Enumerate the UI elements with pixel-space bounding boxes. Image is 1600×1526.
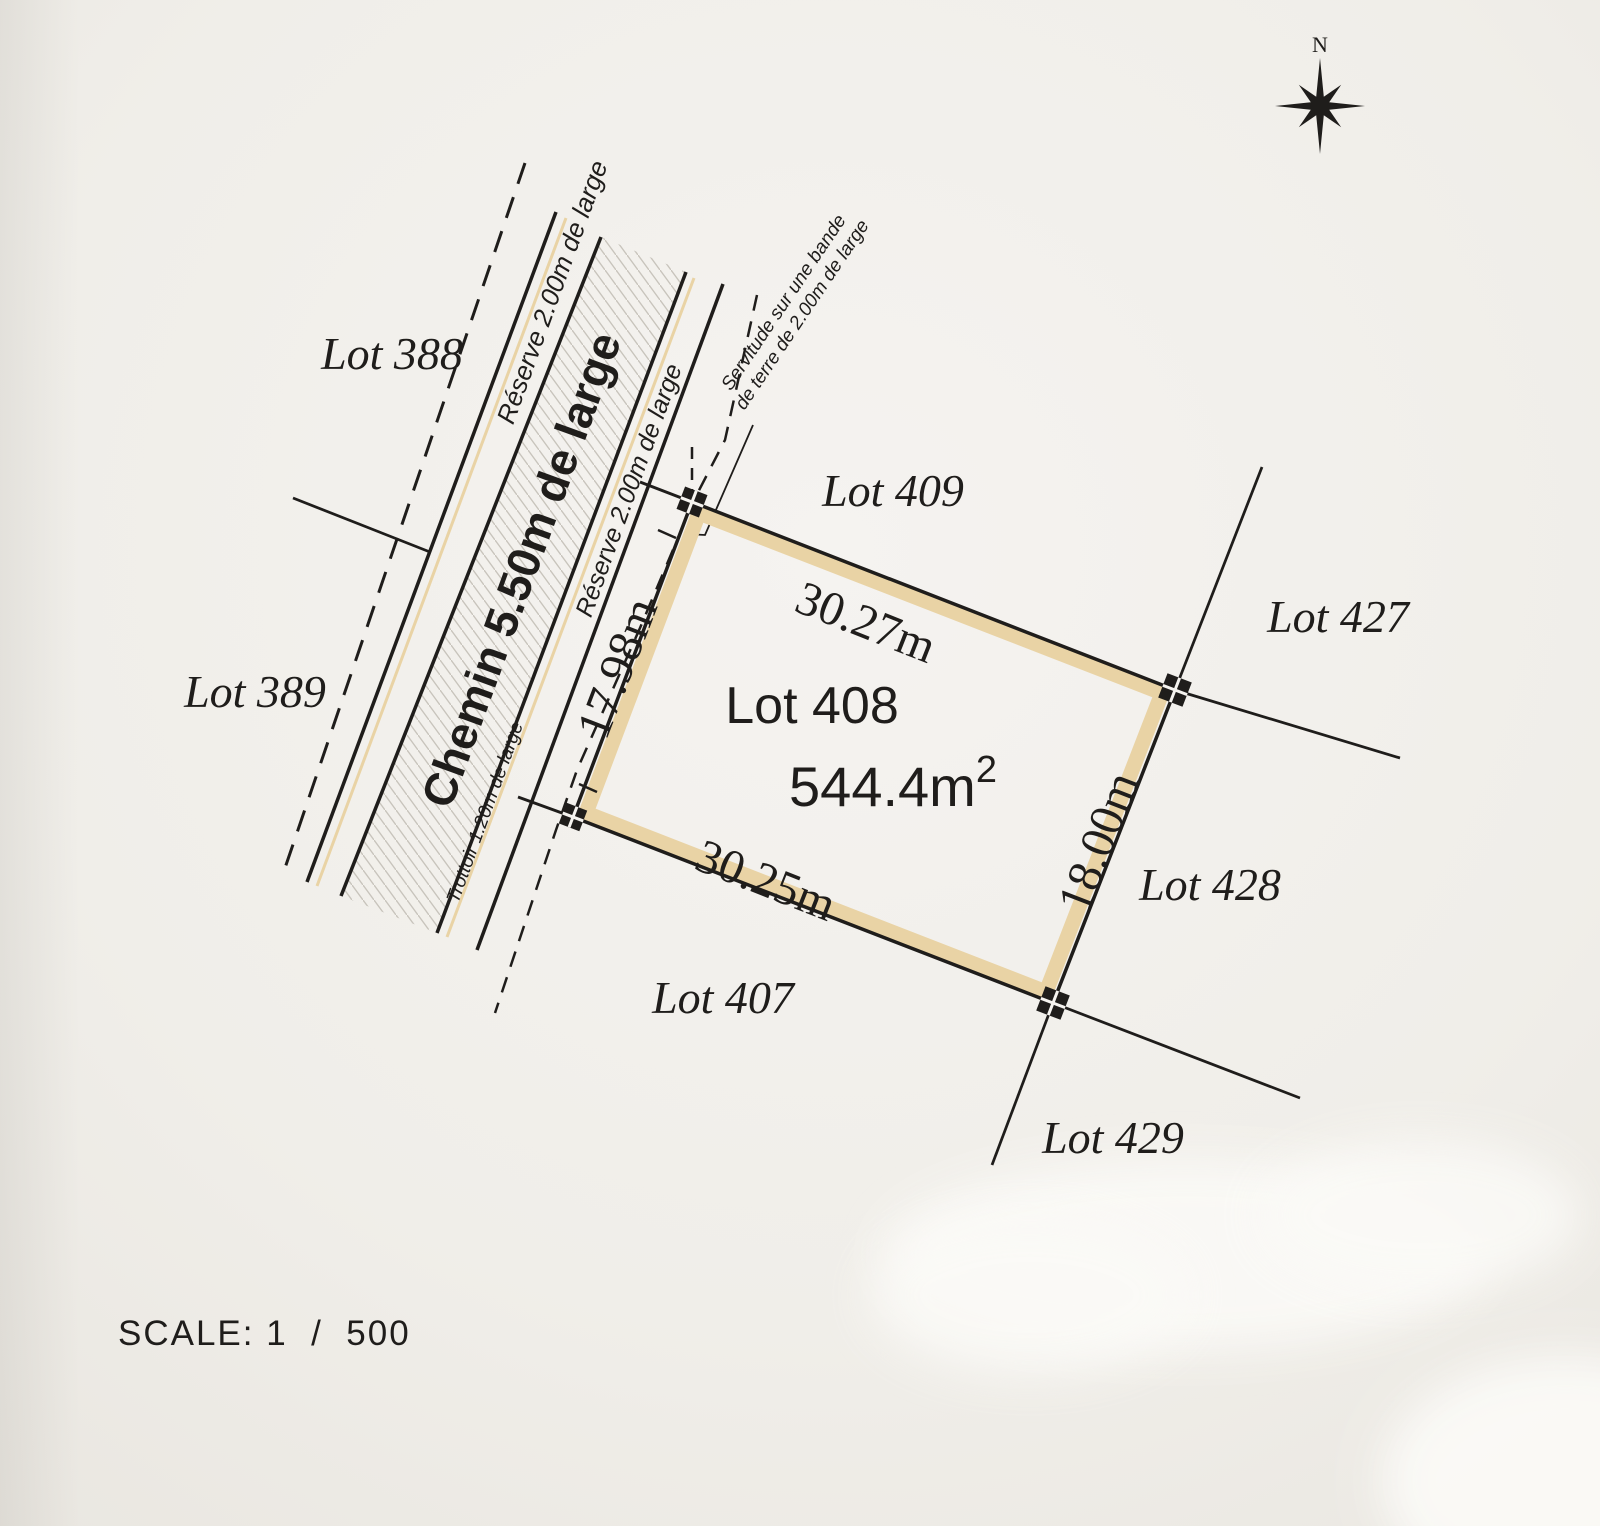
parcel-area-value: 544.4m <box>789 755 976 818</box>
parcel-area-superscript: 2 <box>976 749 997 791</box>
lot-388-label: Lot 388 <box>320 328 463 379</box>
lot-389-label: Lot 389 <box>183 666 326 717</box>
lot-409-label: Lot 409 <box>821 465 964 516</box>
lot-428-label: Lot 428 <box>1138 859 1281 910</box>
parcel-area: 544.4m2 <box>789 749 997 818</box>
lot-429-label: Lot 429 <box>1041 1112 1184 1163</box>
parcel-title: Lot 408 <box>725 677 899 735</box>
compass-north-label: N <box>1312 32 1328 57</box>
scale-label: SCALE: 1 / 500 <box>118 1314 411 1353</box>
lot-427-label: Lot 427 <box>1266 591 1411 642</box>
survey-plan: Réserve 2.00m de large Chemin 5.50m de l… <box>0 0 1600 1526</box>
lot-407-label: Lot 407 <box>651 972 796 1023</box>
